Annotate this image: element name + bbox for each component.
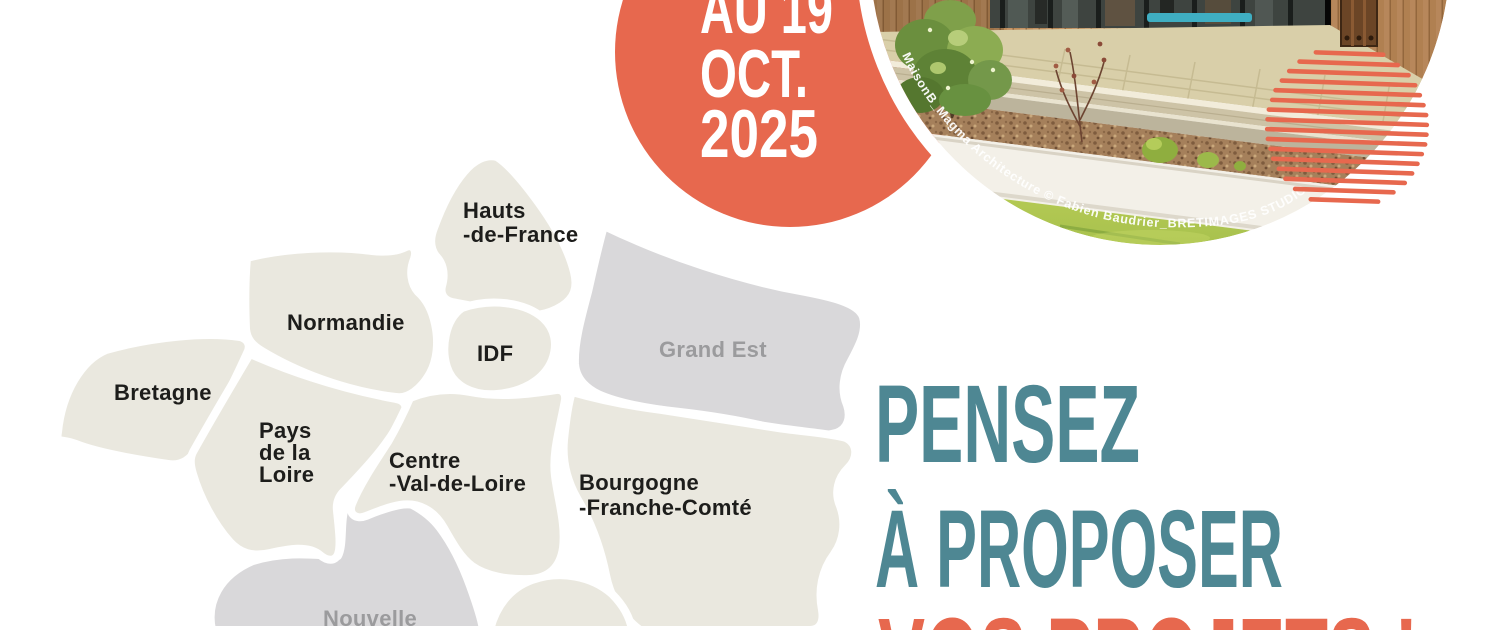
region-label-nouvelle-aquitaine: Nouvelle: [323, 606, 417, 630]
region-label-grand-est: Grand Est: [659, 337, 767, 362]
headline-line-1: PENSEZ: [875, 363, 1140, 486]
region-label-bretagne: Bretagne: [114, 380, 212, 405]
poster-canvas: AU 19 OCT. 2025: [0, 0, 1500, 630]
poster: AU 19 OCT. 2025: [0, 0, 1500, 630]
headline-line-2: À PROPOSER: [875, 488, 1283, 611]
date-badge-line: 2025: [700, 96, 818, 172]
birdhouse: [1341, 0, 1377, 46]
region-label-pays-de-la-loire: Pays de la Loire: [259, 418, 318, 487]
region-label-normandie: Normandie: [287, 310, 405, 335]
teal-accent-bar: [1147, 13, 1252, 22]
headline-line-3: VOS PROJETS !: [878, 596, 1418, 630]
region-label-idf: IDF: [477, 341, 513, 366]
glass-doors: [990, 0, 1331, 28]
